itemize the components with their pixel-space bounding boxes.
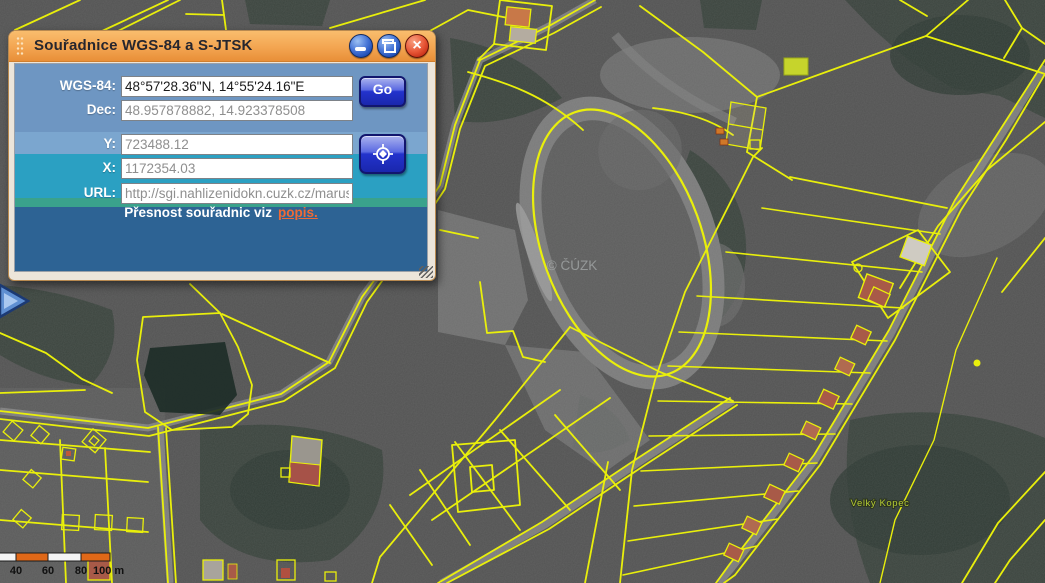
scale-label-80: 80: [75, 565, 87, 577]
map-viewer-screen: { "dialog": { "title": "Souřadnice WGS-8…: [0, 0, 1045, 583]
url-input[interactable]: [121, 183, 353, 204]
restore-icon: [384, 42, 396, 53]
drag-handle-dots-icon[interactable]: [16, 36, 24, 56]
scale-label-40: 40: [10, 565, 22, 577]
place-label: Velký Kopec: [851, 498, 910, 509]
dec-input[interactable]: [121, 100, 353, 121]
scale-label-100m: 100 m: [93, 565, 124, 577]
accuracy-note: Přesnost souřadnic vizpopis.: [15, 205, 427, 220]
go-button[interactable]: Go: [359, 76, 406, 107]
pond: [144, 342, 237, 415]
x-label: X:: [15, 160, 116, 175]
dialog-title: Souřadnice WGS-84 a S-JTSK: [34, 37, 253, 54]
url-label: URL:: [15, 185, 116, 200]
copyright-watermark: © ČÚZK: [547, 258, 597, 273]
y-label: Y:: [15, 136, 116, 151]
dialog-body: WGS-84: Dec: Y: X: URL: Go Přesnost souř…: [14, 63, 428, 272]
restore-button[interactable]: [377, 34, 401, 58]
minimize-icon: [355, 47, 366, 51]
wgs84-label: WGS-84:: [15, 78, 116, 93]
popis-link[interactable]: popis.: [278, 205, 318, 220]
dec-label: Dec:: [15, 102, 116, 117]
close-icon: ×: [406, 35, 428, 57]
coordinates-dialog: Souřadnice WGS-84 a S-JTSK × WGS-84: Dec…: [8, 30, 436, 281]
scale-label-60: 60: [42, 565, 54, 577]
minimize-button[interactable]: [349, 34, 373, 58]
center-map-button[interactable]: [359, 134, 406, 174]
x-input[interactable]: [121, 158, 353, 179]
dialog-titlebar[interactable]: Souřadnice WGS-84 a S-JTSK ×: [9, 31, 435, 62]
wgs84-input[interactable]: [121, 76, 353, 97]
accuracy-note-text: Přesnost souřadnic viz: [124, 205, 272, 220]
crosshair-target-icon: [371, 142, 395, 166]
resize-grip-icon[interactable]: [419, 266, 433, 278]
y-input[interactable]: [121, 134, 353, 155]
close-button[interactable]: ×: [405, 34, 429, 58]
